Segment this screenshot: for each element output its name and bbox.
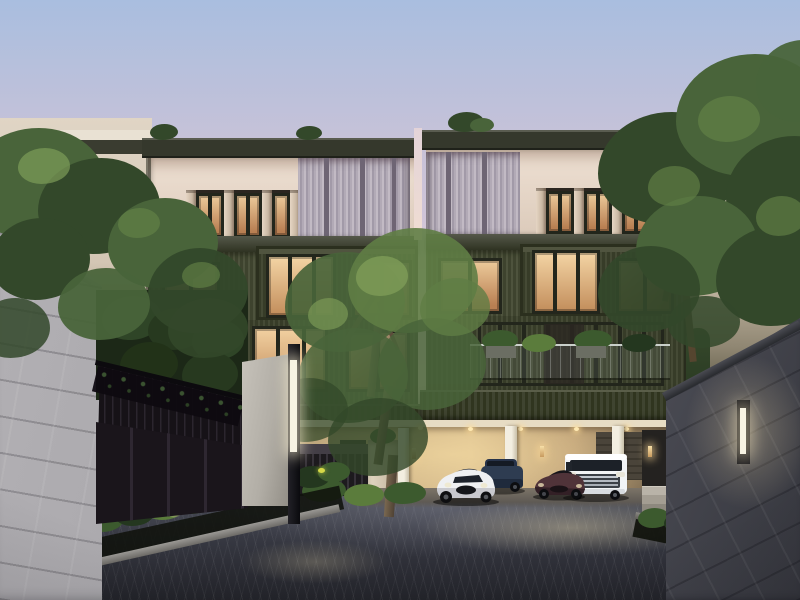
neighbor-right-window	[700, 160, 720, 194]
neighbor-left-roof-band	[50, 140, 152, 154]
panel-stripe	[360, 158, 365, 238]
sky-gap-between-blocks	[414, 128, 422, 240]
window	[546, 191, 574, 234]
car-white-coupe	[431, 458, 501, 506]
wall-sconce	[648, 446, 652, 457]
dark-passage	[642, 430, 668, 488]
pilaster	[612, 188, 622, 234]
top-floor-window-band	[186, 190, 300, 238]
window	[584, 191, 612, 234]
neighbor-right-roof-band	[686, 138, 800, 152]
corrugated-panel	[426, 152, 520, 234]
window	[234, 193, 262, 238]
ceiling-light	[624, 427, 629, 431]
neighbor-left-window-slit	[0, 171, 26, 182]
window	[196, 193, 224, 238]
neighbor-right-window	[730, 225, 756, 265]
pilaster	[574, 188, 584, 234]
window	[352, 260, 412, 318]
pilaster	[650, 188, 660, 234]
corrugated-panel	[298, 158, 410, 238]
ceiling-light	[574, 427, 579, 431]
green-fascia	[420, 390, 700, 422]
dusk-townhome-scene	[0, 0, 800, 600]
window	[622, 191, 650, 234]
wall-lamp-light-strip	[740, 408, 746, 454]
wall-sconce	[412, 448, 416, 459]
ceiling-light	[468, 427, 473, 431]
panel-stripe	[324, 158, 329, 238]
window	[346, 330, 410, 392]
window	[532, 250, 600, 314]
ceiling-light	[518, 427, 523, 431]
pilaster	[224, 190, 234, 238]
townhouse-block-right	[420, 130, 700, 430]
panel-stripe	[482, 152, 487, 234]
window	[272, 193, 290, 238]
neighbor-left-roof-slab	[50, 130, 152, 140]
panel-stripe	[392, 158, 396, 238]
third-floor	[426, 234, 688, 316]
ceiling-light	[418, 426, 423, 430]
panel-stripe	[446, 152, 451, 234]
planter-box	[486, 346, 516, 358]
neighbor-left-window-slit	[0, 152, 26, 163]
lamp-pool-glow	[240, 540, 390, 584]
window	[438, 258, 502, 314]
lamp-post-light-strip	[290, 360, 297, 452]
roof-fascia	[420, 130, 698, 150]
car-maroon-coupe	[531, 461, 587, 501]
top-floor-window-band	[536, 188, 660, 234]
pilaster	[536, 188, 546, 234]
window	[266, 254, 336, 318]
neighbor-right-parapet-band	[686, 205, 800, 215]
pilaster	[262, 190, 272, 238]
side-steps	[642, 486, 668, 514]
planter-box	[576, 346, 606, 358]
wall-sconce	[540, 446, 544, 457]
second-floor	[426, 316, 688, 390]
entry-gate	[96, 352, 248, 530]
gate-pillar	[242, 352, 290, 506]
roof-fascia	[142, 138, 420, 158]
entry-fence	[298, 444, 368, 500]
window	[616, 258, 674, 314]
pilaster	[186, 190, 196, 238]
